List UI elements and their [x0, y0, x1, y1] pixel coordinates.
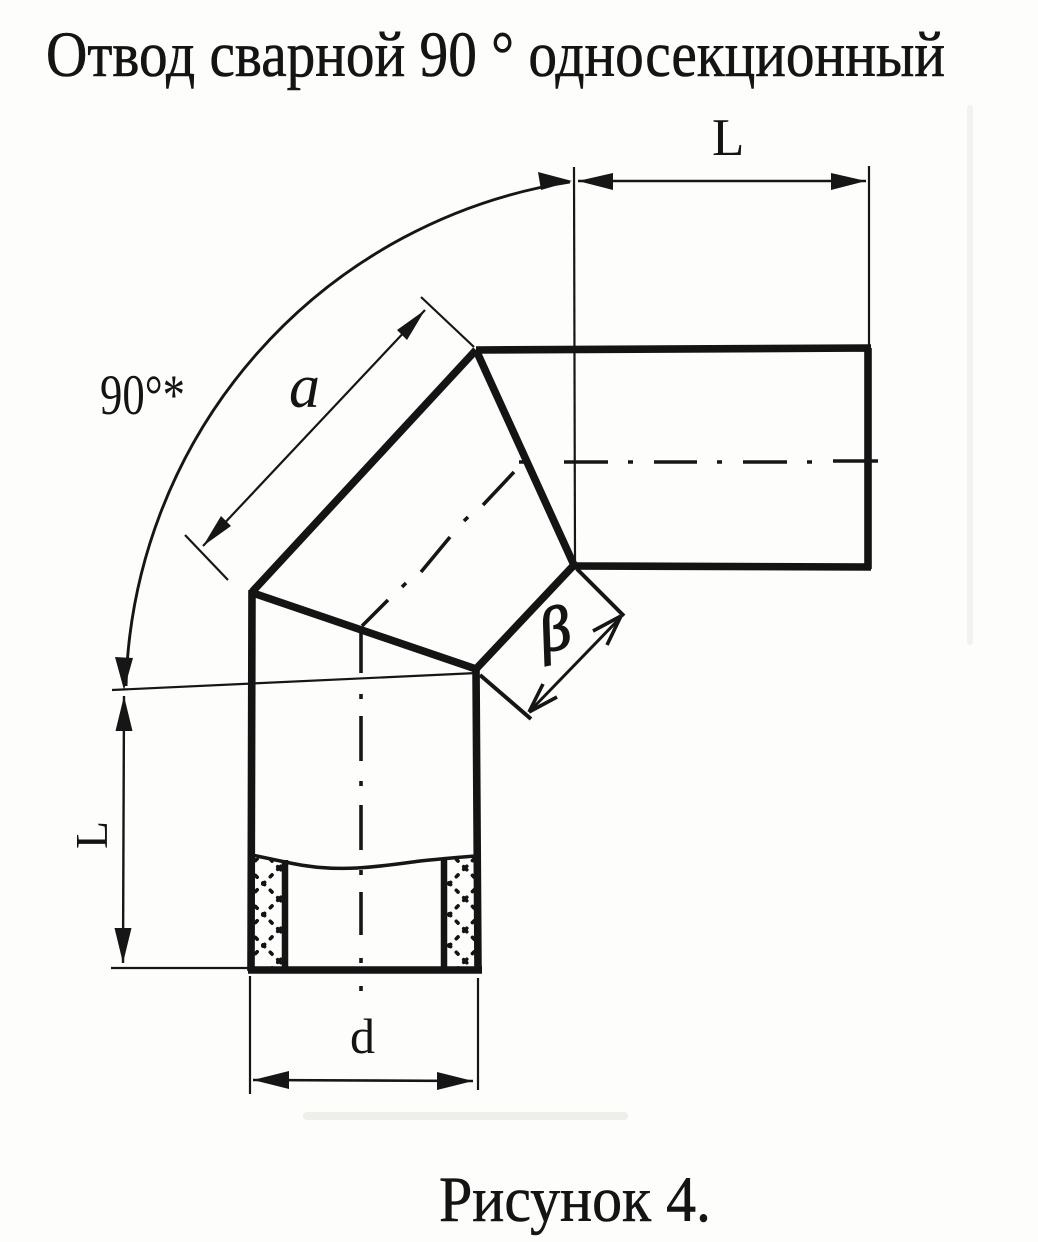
svg-text:L: L	[66, 821, 117, 849]
svg-text:L: L	[712, 109, 744, 167]
svg-text:Отвод сварной 90 ° односекцион: Отвод сварной 90 ° односекционный	[46, 19, 945, 91]
svg-text:Рисунок 4.: Рисунок 4.	[439, 1164, 711, 1236]
svg-text:d: d	[350, 1008, 375, 1064]
svg-text:90°*: 90°*	[100, 364, 185, 427]
svg-text:a: a	[289, 353, 320, 421]
svg-text:β: β	[531, 593, 576, 666]
